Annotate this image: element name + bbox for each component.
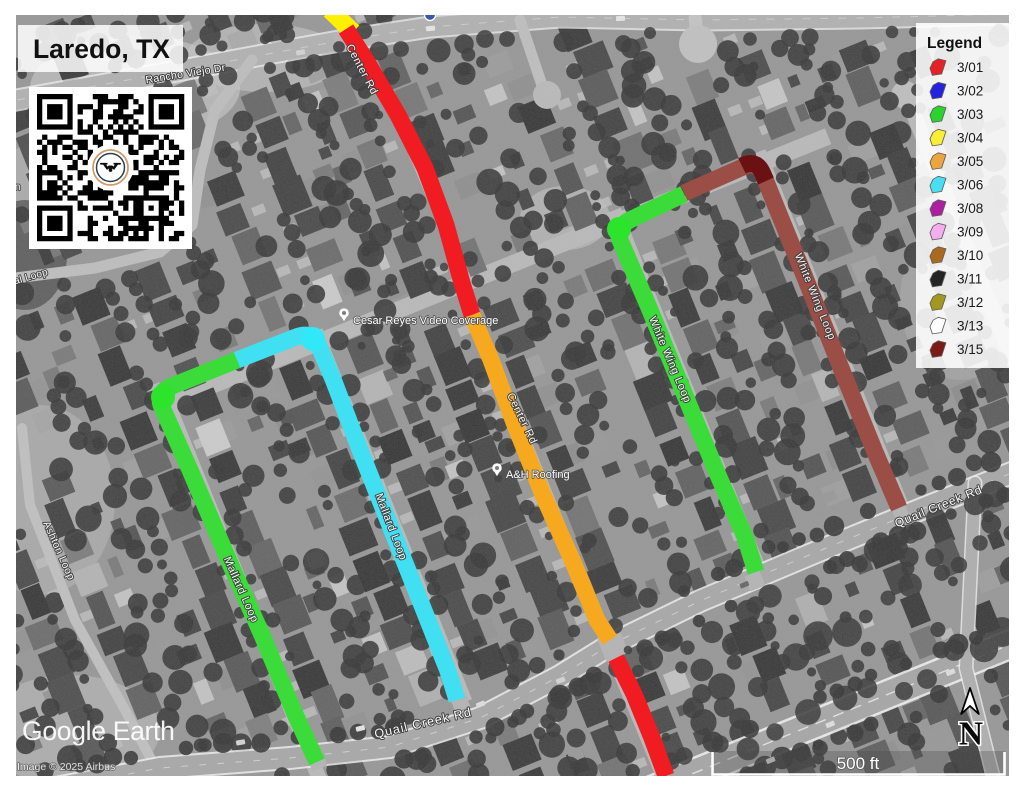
svg-text:3/10: 3/10 [957, 248, 983, 263]
svg-text:3/02: 3/02 [957, 83, 983, 98]
svg-text:3/06: 3/06 [957, 177, 983, 192]
svg-text:3/11: 3/11 [957, 271, 982, 286]
svg-text:3/04: 3/04 [957, 130, 984, 145]
svg-text:500 ft: 500 ft [837, 754, 880, 773]
svg-text:3/13: 3/13 [957, 318, 983, 333]
svg-text:Google Earth: Google Earth [22, 716, 175, 746]
svg-text:Legend: Legend [927, 35, 982, 52]
svg-text:3/09: 3/09 [957, 224, 983, 239]
svg-text:3/08: 3/08 [957, 201, 983, 216]
svg-text:A&H Roofing: A&H Roofing [506, 469, 570, 481]
svg-text:3/03: 3/03 [957, 107, 983, 122]
svg-text:N: N [959, 716, 983, 753]
svg-text:3/12: 3/12 [957, 295, 983, 310]
svg-text:3/05: 3/05 [957, 154, 983, 169]
svg-text:3/15: 3/15 [957, 342, 983, 357]
svg-text:Cesar Reyes Video Coverage: Cesar Reyes Video Coverage [353, 315, 498, 327]
svg-text:Image © 2025 Airbus: Image © 2025 Airbus [17, 761, 115, 773]
svg-text:Laredo, TX: Laredo, TX [33, 34, 170, 64]
svg-text:3/01: 3/01 [957, 60, 983, 75]
